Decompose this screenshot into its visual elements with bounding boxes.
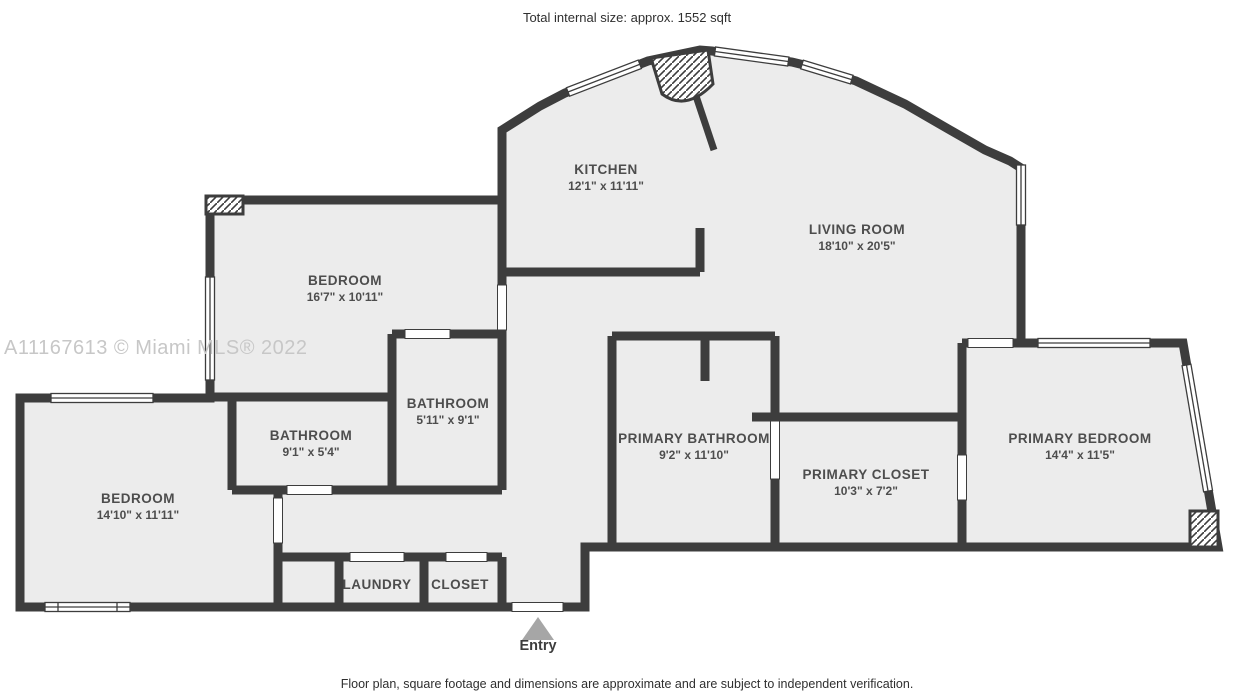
room-label-primary-bathroom: PRIMARY BATHROOM 9'2" x 11'10" xyxy=(618,431,770,462)
room-dims: 10'3" x 7'2" xyxy=(802,485,929,499)
room-dims: 18'10" x 20'5" xyxy=(809,240,905,254)
room-dims: 9'2" x 11'10" xyxy=(618,449,770,463)
room-name: BATHROOM xyxy=(270,428,353,444)
room-dims: 16'7" x 10'11" xyxy=(307,291,383,305)
door-opening xyxy=(498,285,507,330)
room-label-primary-closet: PRIMARY CLOSET 10'3" x 7'2" xyxy=(802,467,929,498)
door-opening xyxy=(968,339,1013,348)
door-opening xyxy=(405,330,450,339)
column xyxy=(206,196,243,214)
room-label-bathroom-hall: BATHROOM 9'1" x 5'4" xyxy=(270,428,353,459)
room-label-kitchen: KITCHEN 12'1" x 11'11" xyxy=(568,162,644,193)
door-opening xyxy=(350,553,404,562)
door-opening xyxy=(287,486,332,495)
room-label-primary-bedroom: PRIMARY BEDROOM 14'4" x 11'5" xyxy=(1008,431,1151,462)
room-dims: 12'1" x 11'11" xyxy=(568,180,644,194)
room-name: LAUNDRY xyxy=(343,577,412,593)
total-size-label: Total internal size: approx. 1552 sqft xyxy=(523,10,731,25)
mls-watermark: A11167613 © Miami MLS® 2022 xyxy=(4,337,308,360)
room-name: KITCHEN xyxy=(568,162,644,178)
room-label-bedroom-left: BEDROOM 14'10" x 11'11" xyxy=(97,491,180,522)
room-name: LIVING ROOM xyxy=(809,222,905,238)
room-label-bedroom-top: BEDROOM 16'7" x 10'11" xyxy=(307,273,383,304)
window xyxy=(206,277,215,380)
room-name: BATHROOM xyxy=(407,396,490,412)
floor-plan: Total internal size: approx. 1552 sqft A… xyxy=(0,0,1252,698)
window xyxy=(1017,165,1026,225)
entry-label: Entry xyxy=(519,638,556,654)
window xyxy=(1038,339,1150,348)
room-name: PRIMARY CLOSET xyxy=(802,467,929,483)
door-opening xyxy=(274,498,283,543)
room-dims: 5'11" x 9'1" xyxy=(407,414,490,428)
room-label-living-room: LIVING ROOM 18'10" x 20'5" xyxy=(809,222,905,253)
room-name: PRIMARY BATHROOM xyxy=(618,431,770,447)
room-label-laundry: LAUNDRY xyxy=(343,577,412,593)
entry-arrow-icon xyxy=(522,617,554,640)
room-name: CLOSET xyxy=(431,577,489,593)
room-dims: 14'10" x 11'11" xyxy=(97,509,180,523)
entry-door-opening xyxy=(512,603,563,612)
room-dims: 14'4" x 11'5" xyxy=(1008,449,1151,463)
room-dims: 9'1" x 5'4" xyxy=(270,446,353,460)
door-opening xyxy=(958,455,967,500)
disclaimer-text: Floor plan, square footage and dimension… xyxy=(341,677,914,691)
window xyxy=(51,394,153,403)
fireplace xyxy=(651,50,713,101)
room-name: PRIMARY BEDROOM xyxy=(1008,431,1151,447)
room-name: BEDROOM xyxy=(97,491,180,507)
door-opening xyxy=(771,421,780,479)
room-label-closet: CLOSET xyxy=(431,577,489,593)
room-name: BEDROOM xyxy=(307,273,383,289)
room-label-bathroom-ensuite: BATHROOM 5'11" x 9'1" xyxy=(407,396,490,427)
column xyxy=(1190,511,1218,547)
door-opening xyxy=(446,553,487,562)
window xyxy=(45,603,130,612)
exterior-walls xyxy=(20,50,1218,607)
